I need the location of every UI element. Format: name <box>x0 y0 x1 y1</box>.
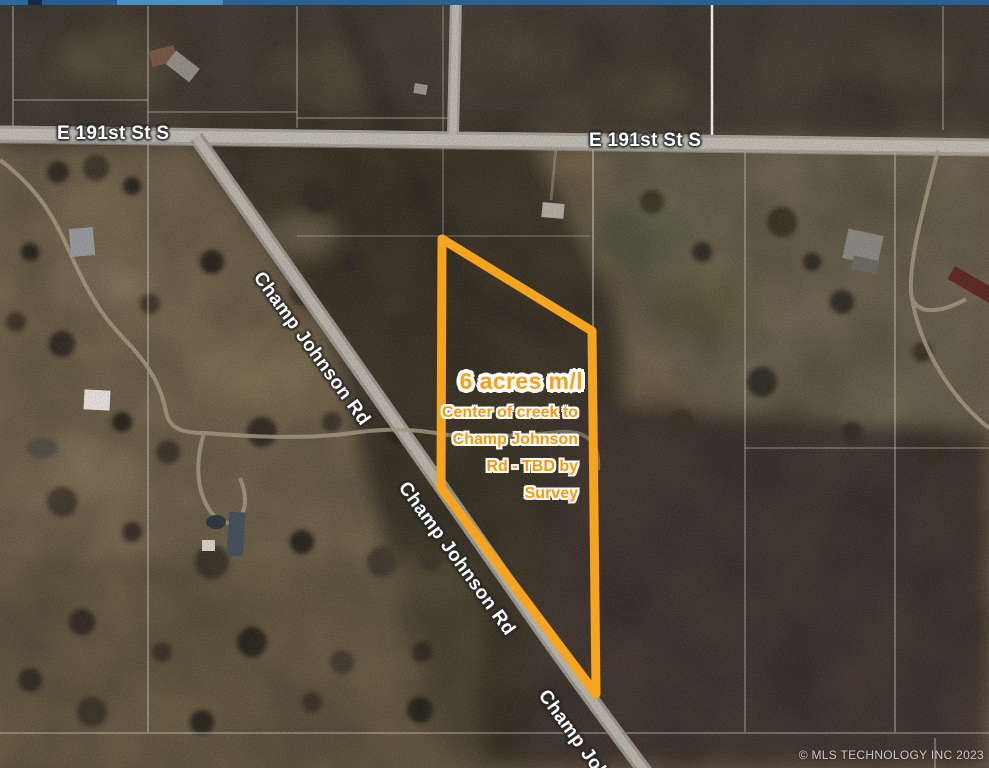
browser-chrome-sliver <box>0 0 989 5</box>
annotation-line: Survey <box>442 480 578 507</box>
acreage-headline: 6 acres m/l <box>460 368 583 395</box>
annotation-line: Champ Johnson <box>442 426 578 453</box>
acreage-annotation: 6 acres m/l Center of creek to Champ Joh… <box>442 368 583 507</box>
road-label-e-191st-west: E 191st St S <box>57 123 169 145</box>
chrome-segment <box>0 0 28 5</box>
annotation-line: Center of creek to <box>442 399 578 426</box>
chrome-segment <box>42 0 117 5</box>
listing-map-image: E 191st St S E 191st St S Champ Johnson … <box>0 0 989 768</box>
chrome-segment <box>223 0 989 5</box>
chrome-segment <box>117 0 223 5</box>
road-label-e-191st-east: E 191st St S <box>589 130 701 152</box>
mls-watermark: © MLS TECHNOLOGY INC 2023 <box>799 748 984 762</box>
chrome-segment <box>28 0 42 5</box>
annotation-line: Rd - TBD by <box>442 453 578 480</box>
